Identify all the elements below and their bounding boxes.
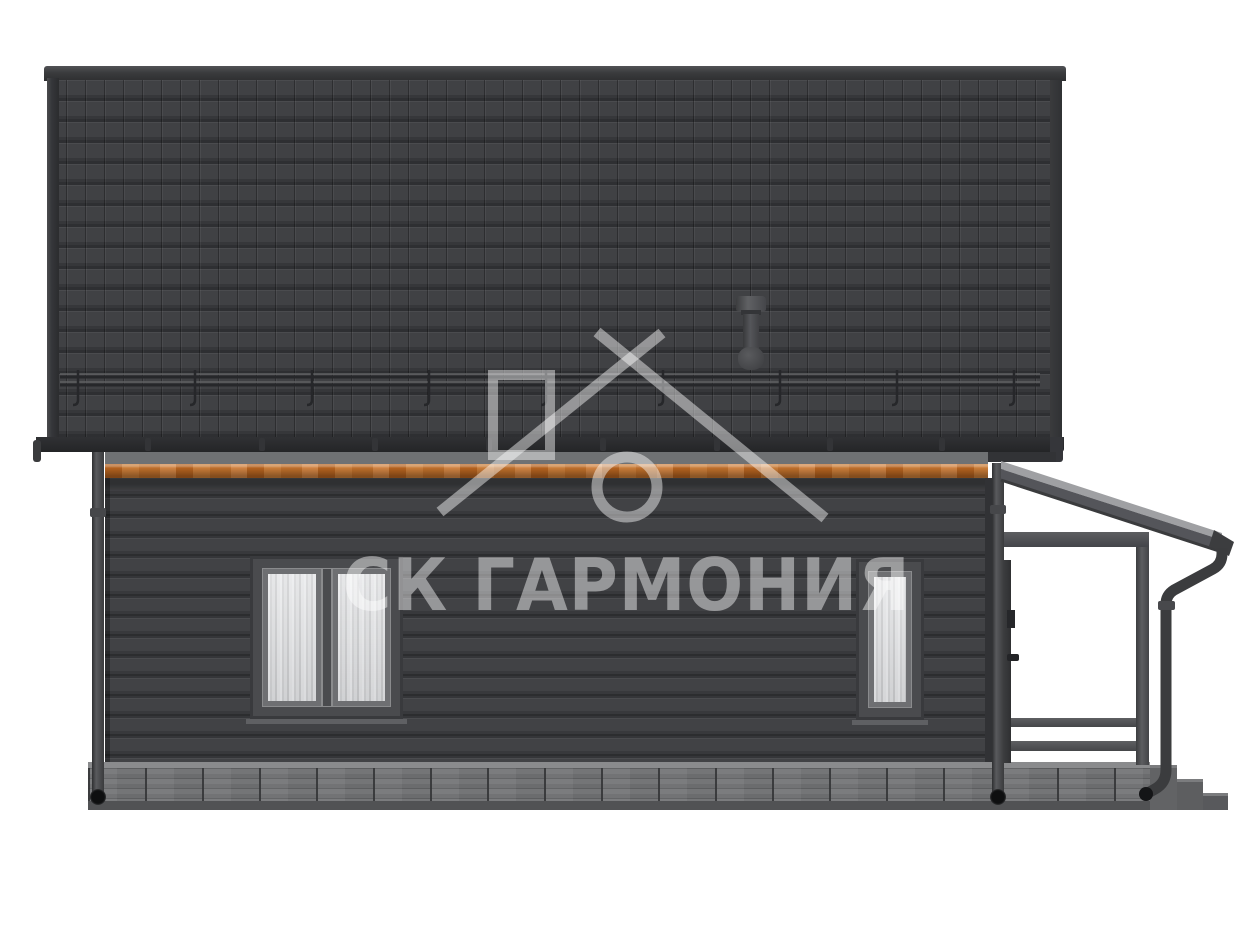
watermark-logo-house-icon [0,0,1253,940]
watermark-text: СК ГАРМОНИЯ [44,549,1209,621]
house-elevation-render: СК ГАРМОНИЯ [0,0,1253,940]
